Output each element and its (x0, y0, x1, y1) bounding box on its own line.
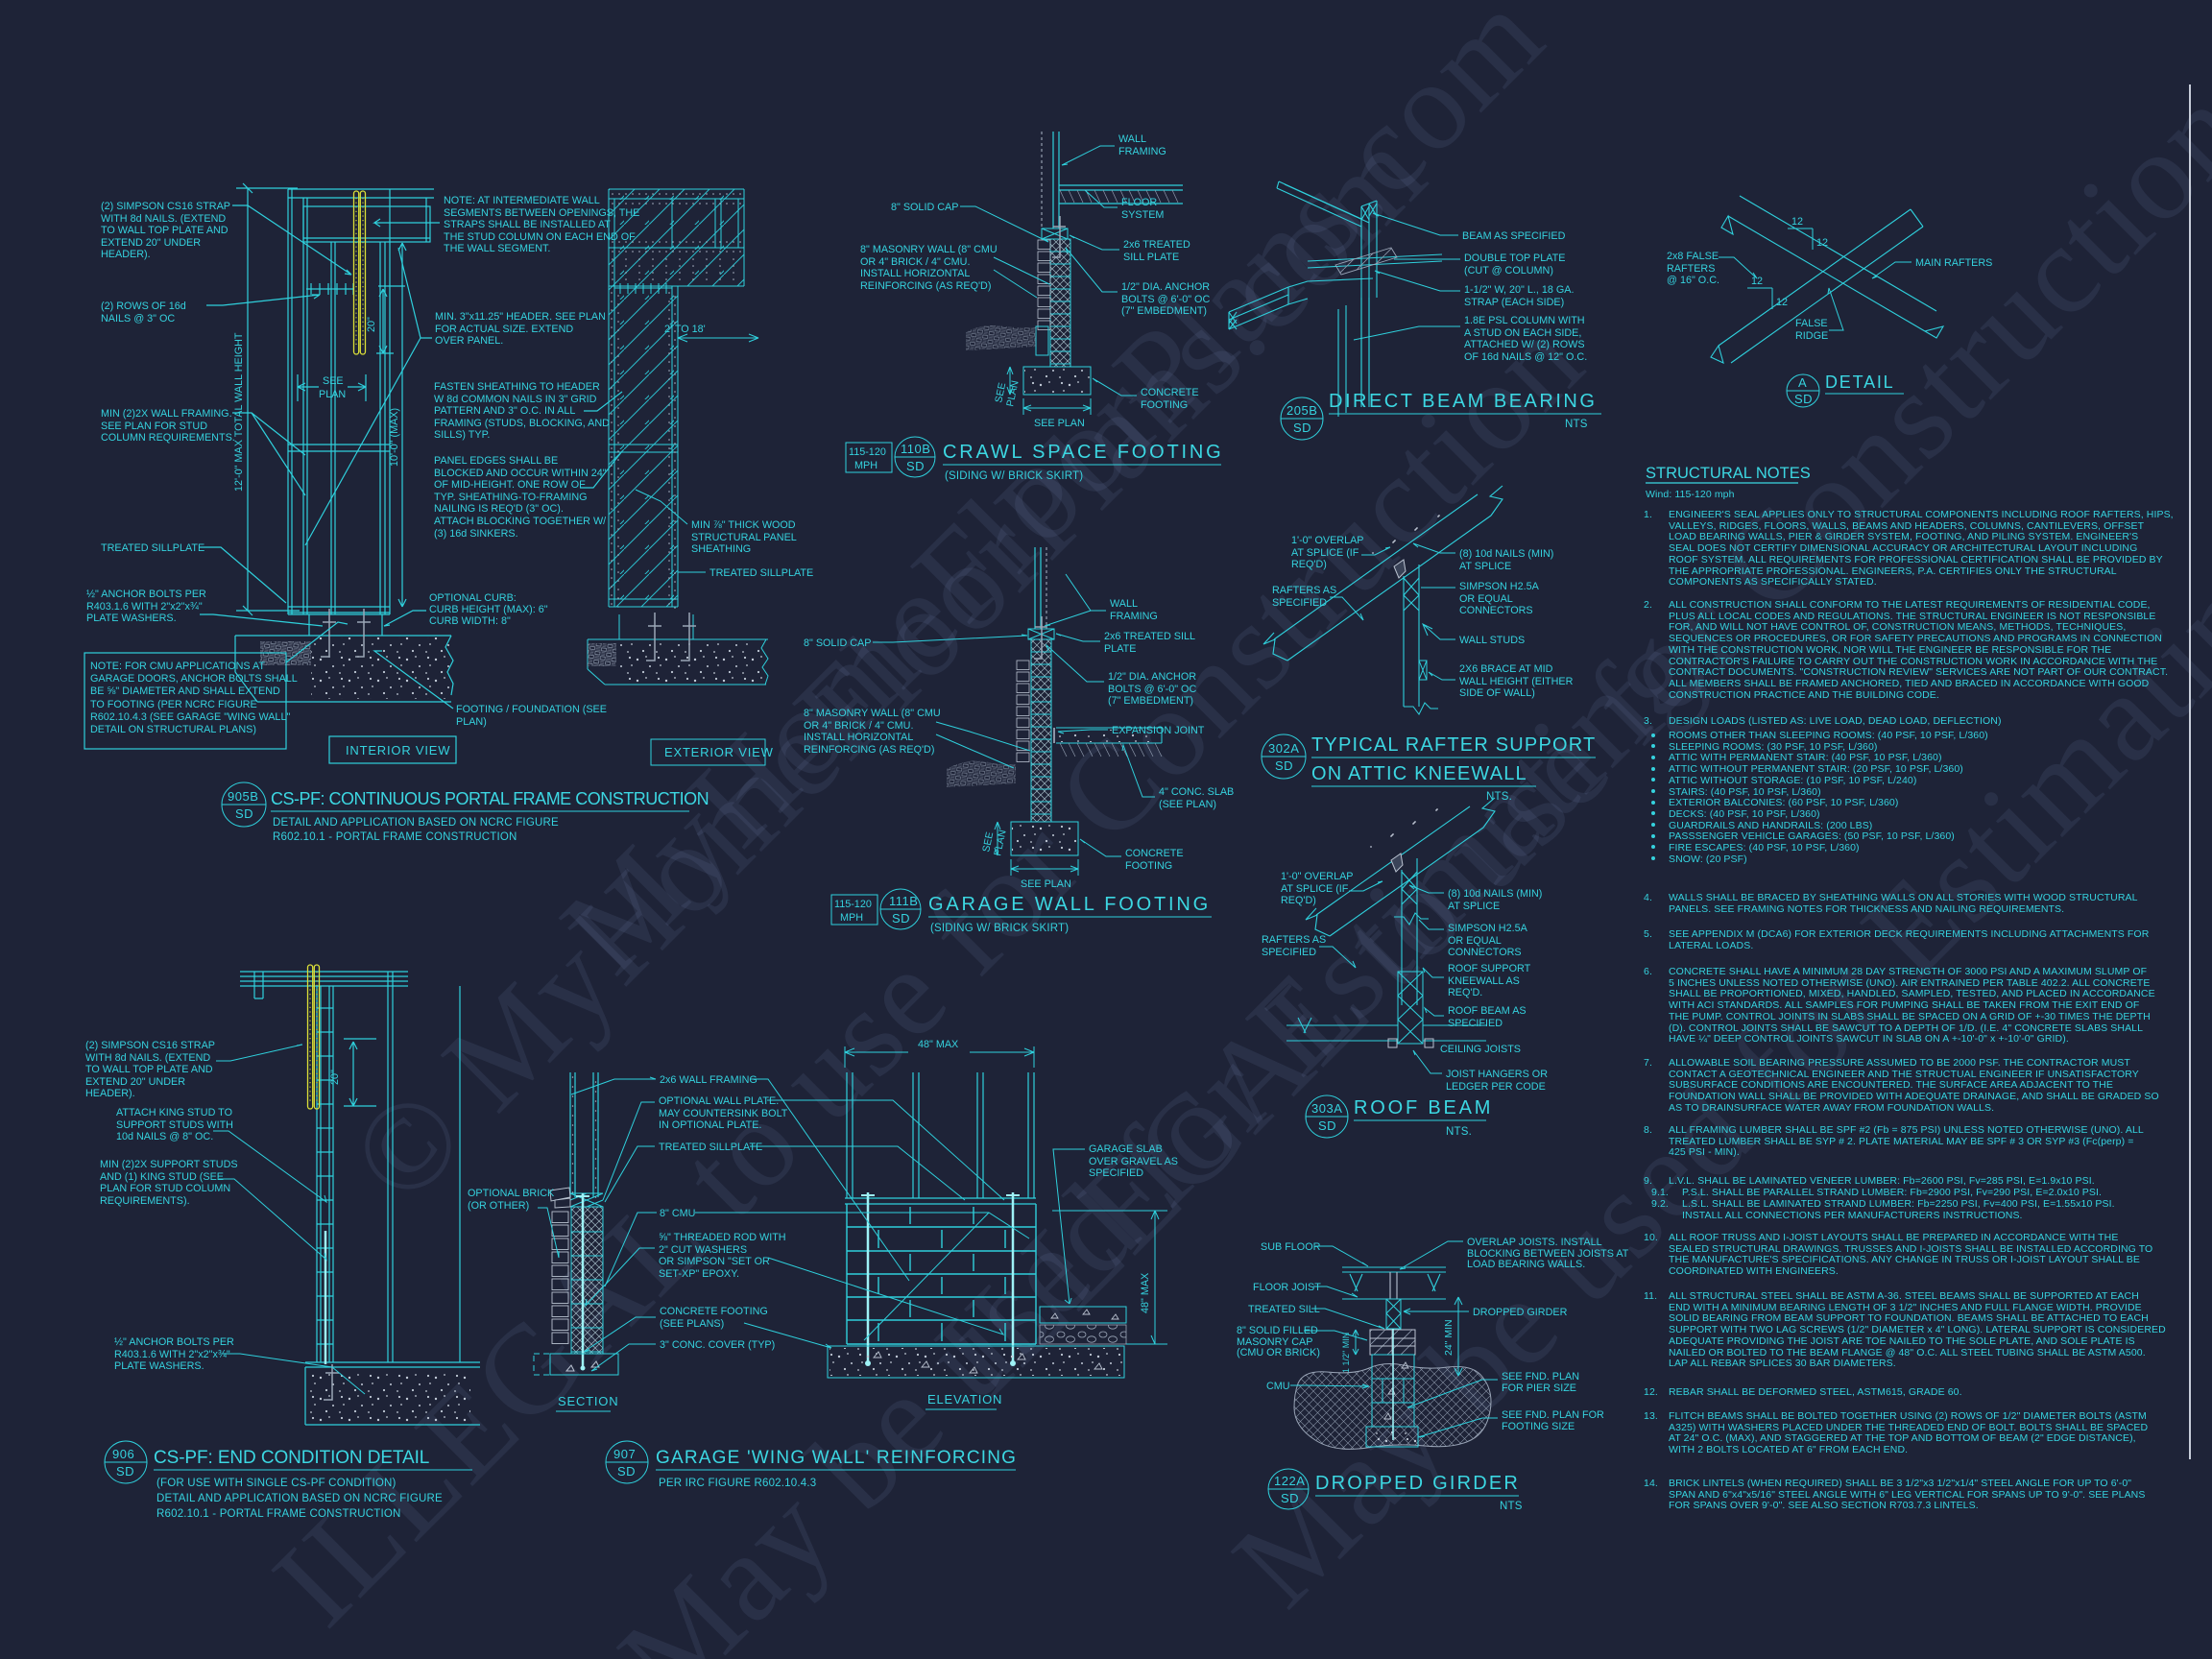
svg-text:CURB HEIGHT (MAX): 6": CURB HEIGHT (MAX): 6" (429, 604, 548, 615)
svg-text:(8) 10d NAILS (MIN): (8) 10d NAILS (MIN) (1448, 888, 1542, 900)
svg-text:122A: 122A (1274, 1474, 1305, 1488)
svg-text:OR EQUAL: OR EQUAL (1459, 593, 1513, 605)
svg-text:ALL ROOF TRUSS AND I-JOIST LAY: ALL ROOF TRUSS AND I-JOIST LAYOUTS SHALL… (1669, 1232, 2118, 1243)
svg-text:DIRECT BEAM BEARING: DIRECT BEAM BEARING (1329, 391, 1597, 412)
svg-text:LOAD BEARING WALLS.: LOAD BEARING WALLS. (1467, 1259, 1585, 1270)
svg-text:1.8E PSL COLUMN WITH: 1.8E PSL COLUMN WITH (1464, 315, 1585, 326)
svg-text:SPECIFIED: SPECIFIED (1448, 1018, 1503, 1029)
svg-text:2X6 BRACE AT MID: 2X6 BRACE AT MID (1459, 663, 1553, 675)
svg-text:2" CUT WASHERS: 2" CUT WASHERS (659, 1244, 747, 1256)
svg-text:FASTEN SHEATHING TO HEADER: FASTEN SHEATHING TO HEADER (434, 381, 600, 393)
svg-text:EXPANSION JOINT: EXPANSION JOINT (1112, 725, 1205, 736)
svg-text:STRUCTURAL PANEL: STRUCTURAL PANEL (691, 532, 797, 543)
svg-text:OVER PANEL.: OVER PANEL. (435, 335, 503, 347)
svg-text:SD: SD (1275, 758, 1293, 773)
svg-text:COMPONENTS AS SPECIFICALLY STA: COMPONENTS AS SPECIFICALLY STATED. (1669, 576, 1877, 588)
svg-text:CMU: CMU (1266, 1381, 1290, 1392)
svg-text:WITH ACI STANDARDS. ALL SAMPLE: WITH ACI STANDARDS. ALL SAMPLES FOR PUMP… (1669, 999, 2139, 1011)
svg-text:AT SPLICE (IF: AT SPLICE (IF (1291, 547, 1359, 559)
svg-text:FRAMING: FRAMING (1118, 146, 1166, 157)
svg-text:BE ⅝" DIAMETER AND SHALL EXTEN: BE ⅝" DIAMETER AND SHALL EXTEND (90, 685, 280, 697)
svg-text:ROOF SUPPORT: ROOF SUPPORT (1448, 963, 1531, 974)
svg-text:DETAIL AND APPLICATION BASED O: DETAIL AND APPLICATION BASED ON NCRC FIG… (273, 817, 559, 829)
svg-text:R403.1.6 WITH 2"x2"x¾": R403.1.6 WITH 2"x2"x¾" (114, 1349, 230, 1360)
svg-text:PLATE WASHERS.: PLATE WASHERS. (114, 1360, 204, 1372)
svg-text:115-120: 115-120 (849, 446, 886, 458)
svg-text:TO WALL TOP PLATE AND: TO WALL TOP PLATE AND (85, 1064, 213, 1075)
svg-text:20": 20" (329, 1070, 341, 1085)
svg-text:SILLS) TYP.: SILLS) TYP. (434, 429, 490, 441)
svg-text:CONSTRUCTION PRACTICE AND THE: CONSTRUCTION PRACTICE AND THE BUILDING C… (1669, 689, 1939, 701)
svg-text:3" CONC. COVER (TYP): 3" CONC. COVER (TYP) (660, 1339, 775, 1351)
svg-text:ENGINEER'S SEAL APPLIES ONLY T: ENGINEER'S SEAL APPLIES ONLY TO STRUCTUR… (1669, 509, 2174, 520)
svg-text:EXTEND 20" UNDER: EXTEND 20" UNDER (101, 237, 201, 249)
svg-text:CONCRETE: CONCRETE (1125, 848, 1184, 859)
svg-text:BEAM AS SPECIFIED: BEAM AS SPECIFIED (1462, 230, 1566, 242)
svg-text:KNEEWALL AS: KNEEWALL AS (1448, 975, 1520, 987)
svg-text:SUPPORT STUDS WITH: SUPPORT STUDS WITH (116, 1119, 233, 1131)
svg-text:2x6 TREATED SILL: 2x6 TREATED SILL (1104, 631, 1195, 642)
svg-text:CONCRETE: CONCRETE (1141, 387, 1199, 398)
svg-text:RAFTERS AS: RAFTERS AS (1262, 934, 1326, 946)
svg-text:FLITCH BEAMS SHALL BE BOLTED T: FLITCH BEAMS SHALL BE BOLTED TOGETHER US… (1669, 1410, 2147, 1422)
svg-text:HEADER).: HEADER). (101, 249, 151, 260)
svg-text:LEDGER PER CODE: LEDGER PER CODE (1446, 1081, 1546, 1093)
svg-text:(8) 10d NAILS (MIN): (8) 10d NAILS (MIN) (1459, 548, 1553, 560)
svg-text:20": 20" (366, 317, 377, 332)
svg-text:425 PSI - MIN).: 425 PSI - MIN). (1669, 1146, 1740, 1158)
svg-text:ATTACH KING STUD TO: ATTACH KING STUD TO (116, 1107, 232, 1118)
svg-text:½" ANCHOR BOLTS PER: ½" ANCHOR BOLTS PER (86, 589, 206, 600)
svg-text:OF 16d NAILS @ 12" O.C.: OF 16d NAILS @ 12" O.C. (1464, 351, 1587, 363)
svg-text:P.S.L. SHALL BE PARALLEL STRA: P.S.L. SHALL BE PARALLEL STRAND LUMBER: … (1682, 1187, 2102, 1198)
svg-text:R403.1.6 WITH 2"x2"x¾": R403.1.6 WITH 2"x2"x¾" (86, 601, 203, 613)
svg-text:WALL STUDS: WALL STUDS (1459, 635, 1525, 646)
svg-text:SET-XP" EPOXY.: SET-XP" EPOXY. (659, 1268, 739, 1280)
svg-text:12: 12 (1776, 297, 1788, 308)
svg-text:4" CONC. SLAB: 4" CONC. SLAB (1159, 786, 1234, 798)
svg-text:THE WALL SEGMENT.: THE WALL SEGMENT. (444, 243, 550, 254)
svg-text:ALL MEMBERS SHALL BE FRAMED AN: ALL MEMBERS SHALL BE FRAMED ANCHORED, TI… (1669, 678, 2150, 689)
svg-text:SIMPSON H2.5A: SIMPSON H2.5A (1459, 581, 1540, 592)
svg-text:GARAGE WALL FOOTING: GARAGE WALL FOOTING (928, 894, 1211, 915)
svg-text:COORDINATED WITH ENGINEERS.: COORDINATED WITH ENGINEERS. (1669, 1265, 1839, 1277)
svg-text:9.2.: 9.2. (1651, 1198, 1669, 1210)
svg-text:WALLS SHALL BE BRACED BY SHEAT: WALLS SHALL BE BRACED BY SHEATHING WALLS… (1669, 892, 2138, 903)
svg-text:MIN ⅞" THICK WOOD: MIN ⅞" THICK WOOD (691, 519, 796, 531)
svg-text:REQUIREMENTS).: REQUIREMENTS). (100, 1195, 190, 1207)
svg-text:ATTACH BLOCKING TOGETHER W/: ATTACH BLOCKING TOGETHER W/ (434, 516, 606, 527)
svg-text:9.: 9. (1644, 1175, 1652, 1187)
svg-text:1/2" DIA. ANCHOR: 1/2" DIA. ANCHOR (1121, 281, 1210, 293)
svg-text:12: 12 (1751, 276, 1763, 287)
svg-text:12: 12 (1791, 216, 1803, 228)
svg-text:STRUCTURAL NOTES: STRUCTURAL NOTES (1646, 465, 1811, 482)
svg-text:NOTE: AT INTERMEDIATE WALL: NOTE: AT INTERMEDIATE WALL (444, 195, 600, 206)
svg-text:STRAP (EACH SIDE): STRAP (EACH SIDE) (1464, 297, 1564, 308)
svg-text:HAVE ¼" DEEP CONTROL JOINTS SA: HAVE ¼" DEEP CONTROL JOINTS SAWCUT IN SL… (1669, 1033, 2069, 1045)
svg-text:SD: SD (1318, 1118, 1336, 1133)
svg-text:PLATE: PLATE (1104, 643, 1136, 655)
svg-text:NTS: NTS (1500, 1501, 1523, 1512)
svg-text:DROPPED GIRDER: DROPPED GIRDER (1315, 1473, 1520, 1494)
svg-text:SEE: SEE (323, 375, 344, 387)
svg-text:(SEE PLAN): (SEE PLAN) (1159, 799, 1216, 810)
svg-text:(CMU OR BRICK): (CMU OR BRICK) (1237, 1347, 1320, 1358)
svg-text:LATERAL LOADS.: LATERAL LOADS. (1669, 940, 1753, 951)
svg-text:PLAN: PLAN (319, 389, 346, 400)
svg-text:STRAPS SHALL BE INSTALLED AT: STRAPS SHALL BE INSTALLED AT (444, 219, 611, 230)
svg-text:ALL CONSTRUCTION SHALL CONFORM: ALL CONSTRUCTION SHALL CONFORM TO THE LA… (1669, 599, 2151, 611)
svg-text:2.: 2. (1644, 599, 1652, 611)
svg-text:NTS: NTS (1565, 419, 1588, 430)
svg-text:PATTERN AND 3" O.C. IN ALL: PATTERN AND 3" O.C. IN ALL (434, 405, 575, 417)
svg-text:CRAWL SPACE FOOTING: CRAWL SPACE FOOTING (943, 442, 1223, 463)
svg-text:THE PUMP. CONTROL JOINTS IN SL: THE PUMP. CONTROL JOINTS IN SLABS SHALL … (1669, 1011, 2151, 1022)
svg-text:13.: 13. (1644, 1410, 1658, 1422)
svg-text:L.V.L. SHALL BE LAMINATED VEN: L.V.L. SHALL BE LAMINATED VENEER LUMBER:… (1669, 1175, 2095, 1187)
svg-text:SD: SD (235, 806, 253, 821)
svg-text:111B: 111B (889, 894, 918, 908)
svg-text:BOLTS @ 6'-0" OC: BOLTS @ 6'-0" OC (1121, 294, 1210, 305)
svg-text:L.S.L. SHALL BE LAMINATED STR: L.S.L. SHALL BE LAMINATED STRAND LUMBER:… (1682, 1198, 2115, 1210)
svg-text:INSTALL ALL CONNECTIONS PER MA: INSTALL ALL CONNECTIONS PER MANUFACTURER… (1682, 1210, 2023, 1221)
svg-text:SIMPSON H2.5A: SIMPSON H2.5A (1448, 923, 1528, 934)
svg-text:MPH: MPH (854, 460, 878, 471)
svg-text:NAILING IS REQ'D (3" OC).: NAILING IS REQ'D (3" OC). (434, 503, 564, 515)
svg-text:EXTERIOR VIEW: EXTERIOR VIEW (664, 745, 774, 759)
svg-text:SEE PLAN FOR STUD: SEE PLAN FOR STUD (101, 421, 207, 432)
svg-text:7.: 7. (1644, 1057, 1652, 1069)
svg-text:MAIN RAFTERS: MAIN RAFTERS (1915, 257, 1992, 269)
svg-text:CS-PF: END CONDITION DETAIL: CS-PF: END CONDITION DETAIL (154, 1448, 429, 1468)
svg-text:FOOTING SIZE: FOOTING SIZE (1502, 1421, 1575, 1432)
svg-text:(OR OTHER): (OR OTHER) (468, 1200, 529, 1212)
svg-text:DESIGN LOADS (LISTED AS: LIVE: DESIGN LOADS (LISTED AS: LIVE LOAD, DEAD… (1669, 715, 2002, 727)
svg-text:2x6 TREATED: 2x6 TREATED (1123, 239, 1190, 251)
svg-text:DETAIL AND APPLICATION BASED O: DETAIL AND APPLICATION BASED ON NCRC FIG… (156, 1493, 443, 1504)
svg-text:SEE FND. PLAN: SEE FND. PLAN (1502, 1371, 1579, 1382)
svg-text:10'-0" (MAX): 10'-0" (MAX) (389, 408, 400, 467)
svg-text:DECKS: (40 PSF, 10 PSF, L/360): DECKS: (40 PSF, 10 PSF, L/360) (1669, 808, 1820, 820)
svg-text:CONCRETE SHALL HAVE A MINIMUM: CONCRETE SHALL HAVE A MINIMUM 28 DAY STR… (1669, 966, 2147, 977)
svg-text:FOR ACTUAL SIZE. EXTEND: FOR ACTUAL SIZE. EXTEND (435, 324, 573, 335)
svg-text:R602.10.1 - PORTAL FRAME CONST: R602.10.1 - PORTAL FRAME CONSTRUCTION (273, 831, 517, 843)
svg-text:SD: SD (892, 911, 910, 926)
svg-text:HEADER).: HEADER). (85, 1088, 135, 1099)
svg-text:WITH 8d NAILS. (EXTEND: WITH 8d NAILS. (EXTEND (101, 213, 226, 225)
svg-text:SD: SD (1794, 392, 1813, 406)
svg-text:CEILING JOISTS: CEILING JOISTS (1440, 1044, 1521, 1055)
svg-text:SEE PLAN: SEE PLAN (1034, 418, 1085, 429)
svg-text:(7" EMBEDMENT): (7" EMBEDMENT) (1121, 305, 1207, 317)
svg-text:ROOMS OTHER THAN SLEEPING ROOM: ROOMS OTHER THAN SLEEPING ROOMS: (40 PSF… (1669, 730, 1988, 741)
svg-text:THE MANUFACTURE'S SPECIFICATIO: THE MANUFACTURE'S SPECIFICATIONS. ANY CH… (1669, 1254, 2140, 1265)
svg-text:A: A (1798, 375, 1807, 390)
svg-text:AS TO DRAINSURFACE WATER AWAY: AS TO DRAINSURFACE WATER AWAY FROM FOUND… (1669, 1102, 1994, 1114)
svg-text:CURB WIDTH: 8": CURB WIDTH: 8" (429, 615, 511, 627)
svg-text:SEQUENCES OR PROCEDURES, OR FO: SEQUENCES OR PROCEDURES, OR FOR SAFETY P… (1669, 633, 2162, 644)
svg-text:WITH THE CONSTRUCTION WORK, NO: WITH THE CONSTRUCTION WORK, NOR WILL THE… (1669, 644, 2111, 656)
svg-text:SHEATHING: SHEATHING (691, 543, 751, 555)
svg-text:CS-PF: CONTINUOUS PORTAL FRAM: CS-PF: CONTINUOUS PORTAL FRAME CONSTRUCT… (271, 789, 709, 808)
svg-text:14.: 14. (1644, 1478, 1658, 1489)
svg-text:ATTIC WITHOUT STORAGE: (10 PSF: ATTIC WITHOUT STORAGE: (10 PSF, 10 PSF, … (1669, 775, 1916, 786)
svg-text:SEE APPENDIX M (DCA6) FOR EXTE: SEE APPENDIX M (DCA6) FOR EXTERIOR DECK … (1669, 928, 2150, 940)
svg-text:SPECIFIED: SPECIFIED (1262, 947, 1316, 958)
svg-text:TREATED SILLPLATE: TREATED SILLPLATE (659, 1142, 762, 1153)
svg-text:TREATED SILLPLATE: TREATED SILLPLATE (709, 567, 813, 579)
svg-text:OVERLAP JOISTS. INSTALL: OVERLAP JOISTS. INSTALL (1467, 1237, 1602, 1248)
svg-text:5.: 5. (1644, 928, 1652, 940)
svg-text:OR SIMPSON "SET OR: OR SIMPSON "SET OR (659, 1256, 770, 1267)
svg-text:REQ'D.: REQ'D. (1448, 987, 1482, 998)
svg-text:FLOOR JOIST: FLOOR JOIST (1253, 1282, 1321, 1293)
svg-text:9.1.: 9.1. (1651, 1187, 1669, 1198)
svg-text:BLOCKED AND OCCUR WITHIN 24": BLOCKED AND OCCUR WITHIN 24" (434, 468, 607, 479)
svg-text:INSTALL HORIZONTAL: INSTALL HORIZONTAL (804, 732, 913, 743)
svg-text:MPH: MPH (840, 912, 863, 924)
svg-text:AT 24" O.C. (MAX), AND STAGGER: AT 24" O.C. (MAX), AND STAGGERED AT THE … (1669, 1432, 2136, 1444)
svg-text:CONTRACT DOCUMENTS. "CONSTRUCT: CONTRACT DOCUMENTS. "CONSTRUCTION REVIEW… (1669, 666, 2168, 678)
svg-text:½" ANCHOR BOLTS PER: ½" ANCHOR BOLTS PER (114, 1336, 234, 1348)
svg-text:(CUT @ COLUMN): (CUT @ COLUMN) (1464, 265, 1553, 276)
svg-text:OVER GRAVEL AS: OVER GRAVEL AS (1089, 1156, 1178, 1167)
svg-text:LOAD BEARING WALLS, PIER & GIR: LOAD BEARING WALLS, PIER & GIRDER SYSTEM… (1669, 531, 2138, 542)
svg-text:NTS.: NTS. (1486, 791, 1512, 803)
svg-text:ALL FRAMING LUMBER SHALL BE SP: ALL FRAMING LUMBER SHALL BE SPF #2 (Fb =… (1669, 1124, 2144, 1136)
svg-text:905B: 905B (228, 789, 258, 804)
svg-text:(3) 16d SINKERS.: (3) 16d SINKERS. (434, 528, 518, 540)
svg-text:8" MASONRY WALL (8" CMU: 8" MASONRY WALL (8" CMU (804, 708, 941, 719)
svg-text:INTERIOR VIEW: INTERIOR VIEW (346, 743, 450, 757)
svg-text:1-1/2" W, 20" L., 18 GA.: 1-1/2" W, 20" L., 18 GA. (1464, 284, 1575, 296)
svg-text:ALLOWABLE SOIL BEARING PRESSUR: ALLOWABLE SOIL BEARING PRESSURE ASSUMED … (1669, 1057, 2130, 1069)
svg-text:MIN (2)2X SUPPORT STUDS: MIN (2)2X SUPPORT STUDS (100, 1159, 238, 1170)
svg-text:DOUBLE TOP PLATE: DOUBLE TOP PLATE (1464, 252, 1565, 264)
svg-text:MAY COUNTERSINK BOLT: MAY COUNTERSINK BOLT (659, 1108, 788, 1119)
svg-text:FOOTING: FOOTING (1141, 399, 1188, 411)
svg-text:R602.10.1 - PORTAL FRAME CONST: R602.10.1 - PORTAL FRAME CONSTRUCTION (156, 1508, 401, 1520)
svg-text:2x6 WALL FRAMING: 2x6 WALL FRAMING (660, 1074, 757, 1086)
svg-text:SEE PLAN: SEE PLAN (1021, 878, 1071, 890)
svg-text:A STUD ON EACH SIDE,: A STUD ON EACH SIDE, (1464, 327, 1581, 339)
svg-text:OR 4" BRICK / 4" CMU.: OR 4" BRICK / 4" CMU. (860, 256, 970, 268)
svg-text:WITH 8d NAILS. (EXTEND: WITH 8d NAILS. (EXTEND (85, 1052, 210, 1064)
svg-text:WALL: WALL (1110, 598, 1138, 610)
svg-text:PLAN FOR STUD COLUMN: PLAN FOR STUD COLUMN (100, 1183, 230, 1194)
svg-text:FOOTING: FOOTING (1125, 860, 1172, 872)
svg-text:FOUNDATION WALL SHALL BE PROVI: FOUNDATION WALL SHALL BE PROVIDED WITH A… (1669, 1091, 2159, 1102)
svg-text:6.: 6. (1644, 966, 1652, 977)
svg-text:AT SPLICE: AT SPLICE (1448, 901, 1500, 912)
svg-text:FRAMING: FRAMING (1110, 611, 1158, 622)
svg-text:1'-0" OVERLAP: 1'-0" OVERLAP (1281, 871, 1354, 882)
svg-text:NAILS @ 3" OC: NAILS @ 3" OC (101, 313, 175, 325)
svg-text:8" CMU: 8" CMU (660, 1208, 695, 1219)
svg-text:CONCRETE FOOTING: CONCRETE FOOTING (660, 1306, 768, 1317)
svg-text:REBAR SHALL BE DEFORMED STEEL,: REBAR SHALL BE DEFORMED STEEL, ASTM615, … (1669, 1386, 1962, 1398)
svg-text:2x8 FALSE: 2x8 FALSE (1667, 251, 1719, 262)
svg-text:12'-0" MAX TOTAL WALL HEIGHT: 12'-0" MAX TOTAL WALL HEIGHT (233, 332, 245, 492)
svg-text:PANEL EDGES SHALL BE: PANEL EDGES SHALL BE (434, 455, 558, 467)
svg-text:115-120: 115-120 (834, 899, 872, 910)
svg-text:(2) SIMPSON CS16 STRAP: (2) SIMPSON CS16 STRAP (85, 1040, 215, 1051)
svg-text:W 8d COMMON NAILS IN 3" GRID: W 8d COMMON NAILS IN 3" GRID (434, 394, 597, 405)
svg-text:SEAL DOES NOT CERTIFY DIMENSIO: SEAL DOES NOT CERTIFY DIMENSIONAL ACCURA… (1669, 542, 2137, 554)
svg-text:ATTACHED W/ (2) ROWS: ATTACHED W/ (2) ROWS (1464, 339, 1585, 350)
svg-text:48" MAX: 48" MAX (1140, 1273, 1151, 1313)
svg-text:TO FOOTING (PER NCRC FIGURE: TO FOOTING (PER NCRC FIGURE (90, 699, 257, 710)
svg-text:OPTIONAL WALL PLATE.: OPTIONAL WALL PLATE. (659, 1095, 779, 1107)
svg-text:OF MID-HEIGHT. ONE ROW OF: OF MID-HEIGHT. ONE ROW OF (434, 479, 586, 491)
svg-text:FOR, AND WILL NOT HAVE CONTROL: FOR, AND WILL NOT HAVE CONTROL OF, CONST… (1669, 621, 2126, 633)
svg-text:PLAN): PLAN) (456, 716, 487, 728)
svg-text:(SIDING W/ BRICK SKIRT): (SIDING W/ BRICK SKIRT) (930, 923, 1069, 934)
svg-text:110B: 110B (901, 442, 930, 456)
svg-text:AND (1) KING STUD (SEE: AND (1) KING STUD (SEE (100, 1171, 224, 1183)
svg-text:EXTERIOR BALCONIES: (60 PSF, 1: EXTERIOR BALCONIES: (60 PSF, 10 PSF, L/3… (1669, 797, 1898, 808)
svg-text:PASSSENGER VEHICLE GARAGES: (5: PASSSENGER VEHICLE GARAGES: (50 PSF, 10 … (1669, 830, 1955, 842)
svg-text:TO WALL TOP PLATE AND: TO WALL TOP PLATE AND (101, 225, 228, 236)
svg-text:8" SOLID CAP: 8" SOLID CAP (891, 202, 958, 213)
svg-text:MIN. 3"x11.25" HEADER. SEE PLA: MIN. 3"x11.25" HEADER. SEE PLAN (435, 311, 606, 323)
svg-text:8" MASONRY WALL (8" CMU: 8" MASONRY WALL (8" CMU (860, 244, 998, 255)
svg-text:TYPICAL RAFTER SUPPORT: TYPICAL RAFTER SUPPORT (1311, 734, 1596, 756)
svg-text:3.: 3. (1644, 715, 1652, 727)
svg-text:OR EQUAL: OR EQUAL (1448, 935, 1502, 947)
svg-text:AT SPLICE: AT SPLICE (1459, 561, 1511, 572)
svg-text:303A: 303A (1311, 1101, 1342, 1116)
svg-text:IN OPTIONAL PLATE.: IN OPTIONAL PLATE. (659, 1119, 761, 1131)
svg-text:CONNECTORS: CONNECTORS (1448, 947, 1522, 958)
svg-text:MIN (2)2X WALL FRAMING.: MIN (2)2X WALL FRAMING. (101, 408, 232, 420)
svg-text:SEE FND. PLAN FOR: SEE FND. PLAN FOR (1502, 1409, 1604, 1421)
svg-text:SD: SD (1281, 1491, 1299, 1505)
svg-text:THE STUD COLUMN ON EACH END OF: THE STUD COLUMN ON EACH END OF (444, 231, 636, 243)
svg-text:DETAIL: DETAIL (1825, 373, 1894, 392)
svg-text:TYP. SHEATHING-TO-FRAMING: TYP. SHEATHING-TO-FRAMING (434, 492, 588, 503)
svg-text:SPECIFIED: SPECIFIED (1089, 1167, 1143, 1179)
svg-text:(2) SIMPSON CS16 STRAP: (2) SIMPSON CS16 STRAP (101, 201, 230, 212)
svg-text:4.: 4. (1644, 892, 1652, 903)
svg-text:FOOTING / FOUNDATION (SEE: FOOTING / FOUNDATION (SEE (456, 704, 607, 715)
svg-text:RAFTERS AS: RAFTERS AS (1272, 585, 1336, 596)
svg-text:PER IRC FIGURE R602.10.4.3: PER IRC FIGURE R602.10.4.3 (659, 1478, 816, 1489)
svg-text:SUPPORT WITH TWO LAG SCREWS (1: SUPPORT WITH TWO LAG SCREWS (1/2" DIAMET… (1669, 1324, 2166, 1335)
svg-text:PLATE WASHERS.: PLATE WASHERS. (86, 613, 177, 624)
svg-text:2' TO 18': 2' TO 18' (664, 324, 706, 335)
svg-text:OPTIONAL CURB:: OPTIONAL CURB: (429, 592, 517, 604)
svg-text:Wind: 115-120 mph: Wind: 115-120 mph (1646, 489, 1735, 500)
svg-text:(SEE PLANS): (SEE PLANS) (660, 1318, 724, 1330)
svg-text:FRAMING (STUDS, BLOCKING, AND: FRAMING (STUDS, BLOCKING, AND (434, 418, 610, 429)
svg-text:REQ'D): REQ'D) (1281, 895, 1316, 906)
svg-text:1.: 1. (1644, 509, 1652, 520)
svg-text:SD: SD (1293, 421, 1311, 435)
svg-text:SD: SD (617, 1464, 636, 1479)
svg-text:FIRE ESCAPES: (40 PSF, 10 PSF,: FIRE ESCAPES: (40 PSF, 10 PSF, L/360) (1669, 842, 1860, 854)
svg-text:FOR SPANS OVER 9'-0". SEE ALSO: FOR SPANS OVER 9'-0". SEE ALSO SECTION R… (1669, 1500, 1979, 1511)
svg-text:TREATED SILL: TREATED SILL (1248, 1304, 1320, 1315)
svg-text:REQ'D): REQ'D) (1291, 559, 1327, 570)
svg-text:GARAGE 'WING WALL' REINFORCING: GARAGE 'WING WALL' REINFORCING (656, 1448, 1017, 1468)
svg-text:(SIDING W/ BRICK SKIRT): (SIDING W/ BRICK SKIRT) (945, 470, 1083, 482)
svg-text:ELEVATION: ELEVATION (927, 1392, 1002, 1407)
svg-text:8" SOLID CAP: 8" SOLID CAP (804, 637, 871, 649)
svg-text:BRICK LINTELS (WHEN REQUIRED): BRICK LINTELS (WHEN REQUIRED) SHALL BE 3… (1669, 1478, 2131, 1489)
svg-text:1 1/2" MIN: 1 1/2" MIN (1341, 1333, 1351, 1373)
svg-text:NOTE: FOR CMU APPLICATIONS AT: NOTE: FOR CMU APPLICATIONS AT (90, 661, 265, 672)
svg-text:ADEQUATE PROVIDING THE JOIST A: ADEQUATE PROVIDING THE JOIST ARE TOE NAI… (1669, 1335, 2135, 1347)
svg-text:10.: 10. (1644, 1232, 1658, 1243)
svg-text:ROOF BEAM: ROOF BEAM (1354, 1097, 1493, 1118)
svg-text:FOR PIER SIZE: FOR PIER SIZE (1502, 1382, 1576, 1394)
svg-text:OR 4" BRICK / 4" CMU.: OR 4" BRICK / 4" CMU. (804, 720, 913, 732)
svg-text:906: 906 (112, 1447, 134, 1461)
svg-text:12.: 12. (1644, 1386, 1658, 1398)
svg-text:SUB FLOOR: SUB FLOOR (1261, 1241, 1321, 1253)
svg-text:48" MAX: 48" MAX (918, 1039, 958, 1050)
svg-text:12: 12 (1816, 237, 1828, 249)
svg-text:SHALL BE PROPORTIONED, MIXED,: SHALL BE PROPORTIONED, MIXED, HANDLED, S… (1669, 988, 2155, 999)
svg-text:ATTIC WITHOUT PERMANENT STAIR:: ATTIC WITHOUT PERMANENT STAIR: (20 PSF, … (1669, 763, 1963, 775)
svg-text:TREATED SILLPLATE: TREATED SILLPLATE (101, 542, 204, 554)
svg-text:ROOF BEAM AS: ROOF BEAM AS (1448, 1005, 1527, 1017)
svg-text:(7" EMBEDMENT): (7" EMBEDMENT) (1108, 695, 1193, 707)
svg-text:ATTIC WITH PERMANENT STAIR: (4: ATTIC WITH PERMANENT STAIR: (40 PSF, 10 … (1669, 752, 1942, 763)
svg-text:ALL STRUCTURAL STEEL SHALL BE: ALL STRUCTURAL STEEL SHALL BE ASTM A-36.… (1669, 1290, 2139, 1302)
svg-text:REINFORCING (AS REQ'D): REINFORCING (AS REQ'D) (860, 280, 991, 292)
svg-text:ON ATTIC KNEEWALL: ON ATTIC KNEEWALL (1311, 763, 1527, 784)
svg-text:(FOR USE WITH SINGLE CS-PF CON: (FOR USE WITH SINGLE CS-PF CONDITION) (156, 1478, 397, 1489)
svg-text:OPTIONAL BRICK: OPTIONAL BRICK (468, 1188, 555, 1199)
svg-text:WALL: WALL (1118, 133, 1146, 145)
svg-text:SPECIFIED: SPECIFIED (1272, 597, 1327, 609)
svg-text:SD: SD (906, 459, 925, 473)
svg-text:SYSTEM: SYSTEM (1121, 209, 1164, 221)
svg-text:@ 16" O.C.: @ 16" O.C. (1667, 275, 1719, 286)
svg-text:COLUMN REQUIREMENTS.: COLUMN REQUIREMENTS. (101, 432, 235, 444)
svg-text:ROOF SYSTEM. ALL REQUIREMENTS: ROOF SYSTEM. ALL REQUIREMENTS FOR PROFES… (1669, 554, 2163, 565)
svg-text:SNOW: (20 PSF): SNOW: (20 PSF) (1669, 854, 1747, 865)
svg-text:SD: SD (116, 1464, 134, 1479)
svg-text:WALL HEIGHT (EITHER: WALL HEIGHT (EITHER (1459, 676, 1574, 687)
svg-text:11.: 11. (1644, 1290, 1657, 1302)
svg-text:BOLTS @ 6'-0" OC: BOLTS @ 6'-0" OC (1108, 684, 1196, 695)
svg-text:DETAIL ON STRUCTURAL PLANS): DETAIL ON STRUCTURAL PLANS) (90, 724, 256, 735)
svg-text:SIDE OF WALL): SIDE OF WALL) (1459, 687, 1535, 699)
svg-text:SUBSURFACE CONDITIONS ARE ENCO: SUBSURFACE CONDITIONS ARE ENCOUNTERED. T… (1669, 1079, 2113, 1091)
svg-text:8.: 8. (1644, 1124, 1652, 1136)
svg-text:JOIST HANGERS OR: JOIST HANGERS OR (1446, 1069, 1548, 1080)
svg-text:RIDGE: RIDGE (1795, 330, 1828, 342)
svg-text:24" MIN: 24" MIN (1443, 1319, 1455, 1356)
svg-text:LAP ALL REBAR SPLICES 30 BAR D: LAP ALL REBAR SPLICES 30 BAR DIAMETERS. (1669, 1358, 1896, 1369)
svg-text:⅝" THREADED ROD WITH: ⅝" THREADED ROD WITH (659, 1232, 786, 1243)
svg-text:FALSE: FALSE (1795, 318, 1828, 329)
svg-text:GARAGE SLAB: GARAGE SLAB (1089, 1143, 1163, 1155)
svg-text:EXTEND 20" UNDER: EXTEND 20" UNDER (85, 1076, 185, 1088)
svg-text:DROPPED GIRDER: DROPPED GIRDER (1473, 1307, 1568, 1318)
svg-text:SECTION: SECTION (558, 1394, 618, 1408)
svg-text:SILL PLATE: SILL PLATE (1123, 252, 1179, 263)
svg-text:(2) ROWS OF 16d: (2) ROWS OF 16d (101, 301, 186, 312)
svg-text:1/2" DIA. ANCHOR: 1/2" DIA. ANCHOR (1108, 671, 1196, 683)
svg-text:NTS.: NTS. (1446, 1126, 1472, 1138)
svg-text:10d NAILS @ 8" OC.: 10d NAILS @ 8" OC. (116, 1131, 213, 1142)
svg-text:302A: 302A (1268, 741, 1299, 756)
